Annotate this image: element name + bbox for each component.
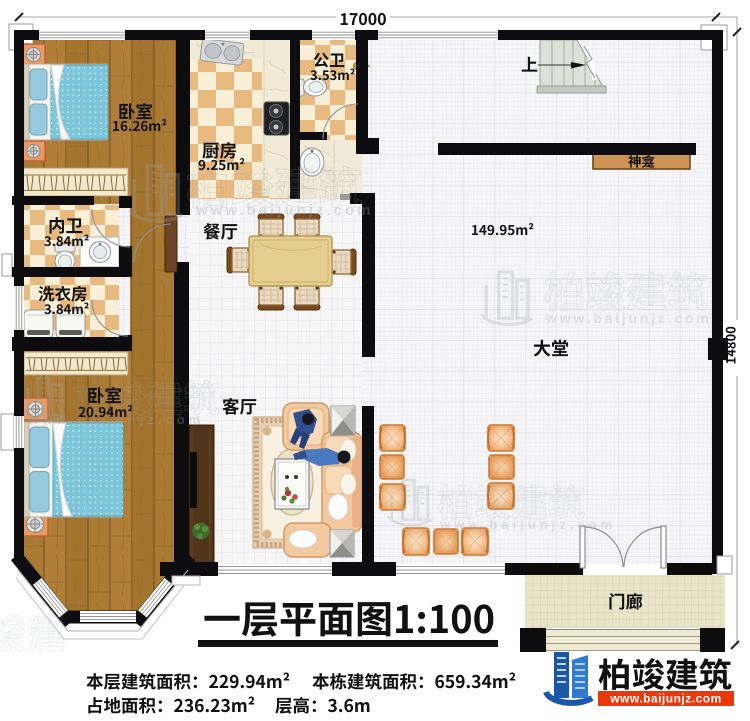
svg-text:www.baijunjz.com: www.baijunjz.com [439,517,616,532]
svg-text:www.baijunjz.com: www.baijunjz.com [195,202,373,219]
svg-text:www.baijunjz.com: www.baijunjz.com [545,310,712,326]
svg-text:www.baijunjz.com: www.baijunjz.com [609,692,722,706]
